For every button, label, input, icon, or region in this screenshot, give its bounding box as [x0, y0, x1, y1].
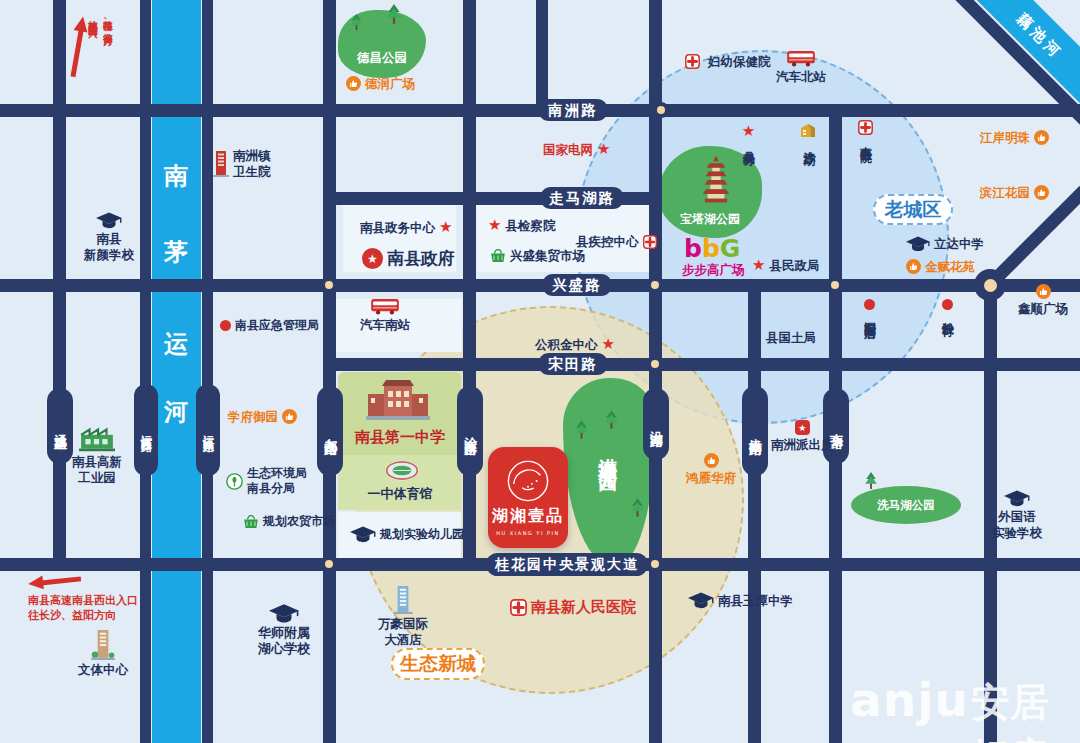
intersection-node: [653, 102, 669, 118]
poi-jiangan-mingzhu: 江岸明珠: [980, 130, 1049, 146]
poi-binjiang-garden: 滨江花园: [980, 185, 1049, 201]
government-star-icon: ★: [362, 248, 383, 269]
river-name-char: 河: [164, 396, 188, 428]
road-label-yunhe-west: 运河西路: [134, 384, 158, 476]
hospital-cross-icon: [510, 599, 527, 616]
pagoda-icon: [702, 151, 730, 209]
intersection-node: [827, 277, 843, 293]
gold-building-icon: [797, 122, 821, 139]
hospital-cross-icon: [858, 120, 873, 135]
property-name: 湖湘壹品: [492, 506, 564, 527]
ximahu-park: 洗马湖公园: [851, 486, 961, 524]
poi-civil-affairs: ★ 县民政局: [752, 258, 819, 274]
anjuke-watermark: anju 安居好房: [850, 672, 1080, 743]
police-badge-icon: ★: [795, 420, 810, 435]
school-building-icon: [366, 376, 430, 422]
poi-xingsheng-market: 兴盛集贸市场: [490, 248, 585, 264]
dechang-park-label: 德昌公园: [340, 50, 424, 66]
poi-admin-center: 南县政务中心 ★: [360, 220, 452, 236]
road-chisong: [748, 285, 761, 743]
poi-wanhao-hotel: 万豪国际大酒店: [378, 586, 428, 647]
poi-tax-bureau: ★ 县税务局: [741, 124, 756, 145]
road-label-chisong: 赤松南路: [742, 386, 768, 476]
graduation-cap-icon: [1004, 490, 1030, 507]
poi-maternity-hospital: 妇幼保健院: [685, 54, 771, 70]
poi-planned-farmers-market: 规划农贸市场: [243, 514, 335, 529]
thumb-icon: [1034, 185, 1049, 200]
poi-bbg-plaza-label: 步步高广场: [682, 262, 745, 278]
eco-city-zone-label: 生态新城: [391, 648, 485, 680]
poi-land-bureau: 县国土局: [766, 330, 816, 346]
poi-derun-plaza: 德润广场: [346, 76, 415, 92]
red-star-icon: ★: [439, 220, 452, 235]
thumb-icon: [704, 453, 719, 468]
red-dot-icon: [220, 320, 231, 331]
red-star-icon: ★: [742, 124, 755, 139]
thumb-icon: [906, 259, 921, 274]
thumb-icon: [346, 76, 361, 91]
tree-icon: [604, 410, 619, 430]
poi-new-peoples-hospital: 南县新人民医院: [510, 598, 636, 617]
tree-icon: [574, 420, 589, 440]
poi-jinfu-garden: 金赋花苑: [906, 259, 975, 275]
graduation-cap-icon: [350, 526, 376, 543]
poi-changsha-bank: 长沙银行: [940, 299, 955, 316]
road-songtian: [330, 358, 1080, 371]
road-label-xingsheng: 兴盛路: [542, 274, 612, 296]
road-label-tongsheng: 通盛路: [47, 388, 73, 464]
poi-south-bus-station: 汽车南站: [360, 298, 410, 333]
property-logo-icon: [506, 459, 550, 503]
blue-building-icon: [393, 586, 413, 614]
thumb-icon: [282, 409, 297, 424]
thumb-icon: [1036, 284, 1051, 299]
road-label-yanhu: 沿湖路: [643, 388, 669, 460]
road-label-guihua: 桂花园中央景观大道: [486, 553, 648, 576]
poi-hightech-park: 南县高新工业园: [72, 424, 122, 485]
hospital-cross-icon: [643, 235, 657, 249]
road-xingsheng: [0, 279, 1080, 292]
intersection-node-major: [974, 269, 1006, 301]
bus-icon: [787, 50, 815, 67]
poi-procuratorate: ★ 县检察院: [488, 218, 555, 234]
west-direction-note: 南县高速南县西出入口 往长沙、益阳方向: [28, 594, 138, 624]
property-badge: 湖湘壹品 HU XIANG YI PIN: [488, 447, 568, 548]
west-direction-arrow-icon: [27, 571, 84, 591]
property-name-en: HU XIANG YI PIN: [496, 530, 559, 536]
river-name-char: 茅: [164, 236, 188, 268]
intersection-node: [647, 556, 663, 572]
graduation-cap-icon: [688, 592, 714, 609]
baotahu-park-label: 宝塔湖公园: [660, 212, 760, 227]
poi-planned-kindergarten: 规划实验幼儿园: [350, 526, 464, 543]
intersection-node: [647, 356, 663, 372]
intersection-node: [321, 556, 337, 572]
graduation-cap-icon: [269, 604, 299, 623]
tree-icon: [386, 4, 402, 25]
red-dot-icon: [942, 299, 953, 310]
poi-environment-bureau: 生态环境局南县分局: [226, 466, 307, 496]
red-star-icon: ★: [488, 218, 501, 233]
market-basket-icon: [243, 515, 259, 529]
poi-housing-fund: 公积金中心 ★: [535, 337, 615, 353]
poi-tcm-hospital: 南县中医院: [858, 120, 873, 142]
hospital-cross-icon: [685, 54, 700, 69]
red-star-icon: ★: [602, 337, 615, 352]
intersection-node: [321, 277, 337, 293]
tree-icon: [350, 14, 363, 31]
poi-dongting-hotel: 洞庭国际酒店: [862, 299, 877, 318]
road-label-yunhe-east: 运河东路: [196, 384, 220, 476]
map-canvas: 南 茅 运 河 德昌公园 宝塔湖公园 洪堰湖公园 洗马湖公园 藕池河 南洲路: [0, 0, 1080, 743]
poi-xinshun-plaza: 鑫顺广场: [1018, 284, 1068, 317]
beige-building-icon: [91, 630, 115, 660]
factory-icon: [79, 424, 115, 452]
poi-first-school-label: 南县第一中学: [340, 428, 460, 447]
poi-nanzhou-clinic: 南洲镇卫生院: [213, 148, 271, 179]
old-town-zone-label: 老城区: [873, 194, 953, 225]
poi-yutan-school: 南县玉潭中学: [688, 592, 793, 609]
road-minor: [536, 0, 548, 104]
poi-hongyan-huafu: 鸿雁华府: [686, 453, 736, 486]
poi-xuefu-yuyuan: 学府御园: [228, 409, 297, 425]
poi-huashi-school: 华师附属湖心学校: [258, 604, 310, 658]
ximahu-park-label: 洗马湖公园: [877, 498, 935, 512]
river-name-char: 运: [164, 328, 188, 360]
thumb-icon: [1034, 130, 1049, 145]
road-label-nanzhou: 南洲路: [538, 99, 608, 121]
bus-icon: [371, 298, 399, 315]
graduation-cap-icon: [96, 212, 122, 229]
stadium-icon: [384, 459, 420, 482]
market-basket-icon: [490, 249, 506, 263]
poi-xinyan-school: 南县新颜学校: [84, 212, 134, 262]
poi-cdc-center: 县疾控中心: [576, 234, 657, 250]
poi-chisha-plaza: 赤沙广场: [797, 122, 821, 145]
poi-county-government: ★ 南县政府: [362, 248, 455, 269]
poi-sports-center: 文体中心: [78, 630, 128, 678]
poi-gym-label: 一中体育馆: [345, 486, 455, 502]
bbg-logo: bbG: [684, 236, 740, 261]
river-name-char: 南: [164, 160, 188, 192]
red-star-icon: ★: [752, 258, 765, 273]
clinic-building-icon: [213, 150, 229, 178]
road-label-zouma: 走马湖路: [540, 187, 624, 209]
poi-police-station: ★ 南洲派出所: [771, 420, 834, 453]
intersection-node: [647, 277, 663, 293]
poi-state-grid: 国家电网 ★: [543, 142, 610, 158]
road-label-songtian: 宋田路: [538, 353, 608, 375]
poi-foreign-language-school: 外国语实验学校: [992, 490, 1042, 540]
tree-icon: [864, 472, 878, 490]
red-star-icon: ★: [597, 142, 610, 157]
poi-north-bus-station: 汽车北站: [776, 50, 826, 85]
graduation-cap-icon: [906, 236, 930, 252]
hongyanhu-park-label: 洪堰湖公园: [596, 442, 620, 462]
poi-lida-school: 立达中学: [906, 236, 984, 252]
poi-emergency-bureau: 南县应急管理局: [220, 318, 319, 333]
north-direction-note: 杭瑞高速南县北出入口 往岳阳、常德方向: [86, 12, 114, 30]
red-dot-icon: [864, 299, 875, 310]
eco-leaf-icon: [226, 473, 243, 490]
tree-icon: [630, 498, 645, 518]
road-label-tujiatai: 涂家台路: [457, 386, 483, 476]
